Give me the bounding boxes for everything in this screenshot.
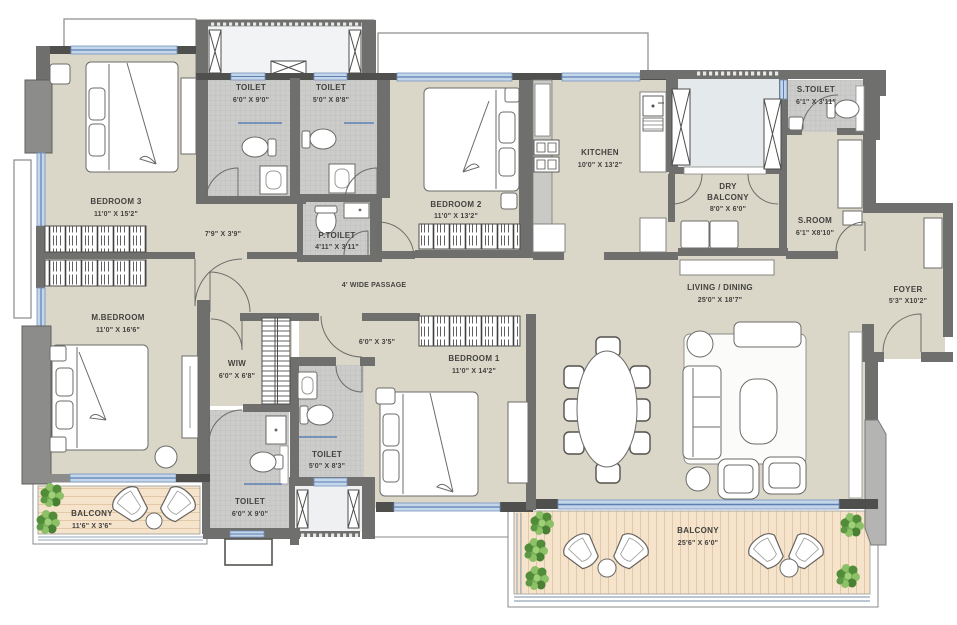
svg-text:S.ROOM: S.ROOM bbox=[798, 216, 832, 225]
svg-text:TOILET: TOILET bbox=[235, 497, 265, 506]
svg-text:6'0" X 3'5": 6'0" X 3'5" bbox=[359, 339, 395, 346]
svg-text:5'3" X10'2": 5'3" X10'2" bbox=[889, 298, 927, 305]
svg-text:11'0" X 16'6": 11'0" X 16'6" bbox=[96, 327, 140, 334]
svg-text:25'6" X 6'0": 25'6" X 6'0" bbox=[678, 540, 718, 547]
svg-text:5'0" X 8'3": 5'0" X 8'3" bbox=[309, 463, 345, 470]
svg-text:TOILET: TOILET bbox=[316, 83, 346, 92]
svg-text:BALCONY: BALCONY bbox=[677, 526, 719, 535]
svg-text:S.TOILET: S.TOILET bbox=[797, 85, 835, 94]
svg-text:FOYER: FOYER bbox=[893, 285, 922, 294]
svg-text:25'0" X 18'7": 25'0" X 18'7" bbox=[698, 297, 742, 304]
svg-text:11'0" X 13'2": 11'0" X 13'2" bbox=[434, 213, 478, 220]
svg-text:4' WIDE PASSAGE: 4' WIDE PASSAGE bbox=[342, 282, 407, 289]
svg-text:BALCONY: BALCONY bbox=[707, 193, 749, 202]
svg-text:11'0" X 14'2": 11'0" X 14'2" bbox=[452, 368, 496, 375]
svg-text:BEDROOM 3: BEDROOM 3 bbox=[90, 197, 141, 206]
svg-text:M.BEDROOM: M.BEDROOM bbox=[91, 313, 144, 322]
svg-text:8'0" X 6'0": 8'0" X 6'0" bbox=[710, 206, 746, 213]
svg-text:7'9" X 3'9": 7'9" X 3'9" bbox=[205, 231, 241, 238]
svg-text:6'1" X 3'11": 6'1" X 3'11" bbox=[796, 99, 836, 106]
svg-text:TOILET: TOILET bbox=[312, 450, 342, 459]
svg-text:TOILET: TOILET bbox=[236, 83, 266, 92]
svg-text:P.TOILET: P.TOILET bbox=[318, 231, 355, 240]
svg-text:KITCHEN: KITCHEN bbox=[581, 148, 619, 157]
svg-text:WIW: WIW bbox=[228, 359, 246, 368]
svg-text:11'6" X 3'6": 11'6" X 3'6" bbox=[72, 523, 112, 530]
svg-text:10'0" X 13'2": 10'0" X 13'2" bbox=[578, 162, 622, 169]
svg-text:11'0" X 15'2": 11'0" X 15'2" bbox=[94, 211, 138, 218]
svg-text:4'11" X 3'11": 4'11" X 3'11" bbox=[315, 244, 359, 251]
svg-text:6'0" X 9'0": 6'0" X 9'0" bbox=[232, 511, 268, 518]
svg-text:6'1" X8'10": 6'1" X8'10" bbox=[796, 230, 834, 237]
svg-text:BEDROOM 2: BEDROOM 2 bbox=[430, 200, 481, 209]
svg-text:5'0" X 8'8": 5'0" X 8'8" bbox=[313, 97, 349, 104]
svg-text:DRY: DRY bbox=[719, 182, 737, 191]
svg-text:LIVING / DINING: LIVING / DINING bbox=[687, 283, 753, 292]
svg-text:BALCONY: BALCONY bbox=[71, 509, 113, 518]
svg-text:6'0" X 6'8": 6'0" X 6'8" bbox=[219, 373, 255, 380]
svg-text:6'0" X 9'0": 6'0" X 9'0" bbox=[233, 97, 269, 104]
svg-text:BEDROOM 1: BEDROOM 1 bbox=[448, 354, 499, 363]
